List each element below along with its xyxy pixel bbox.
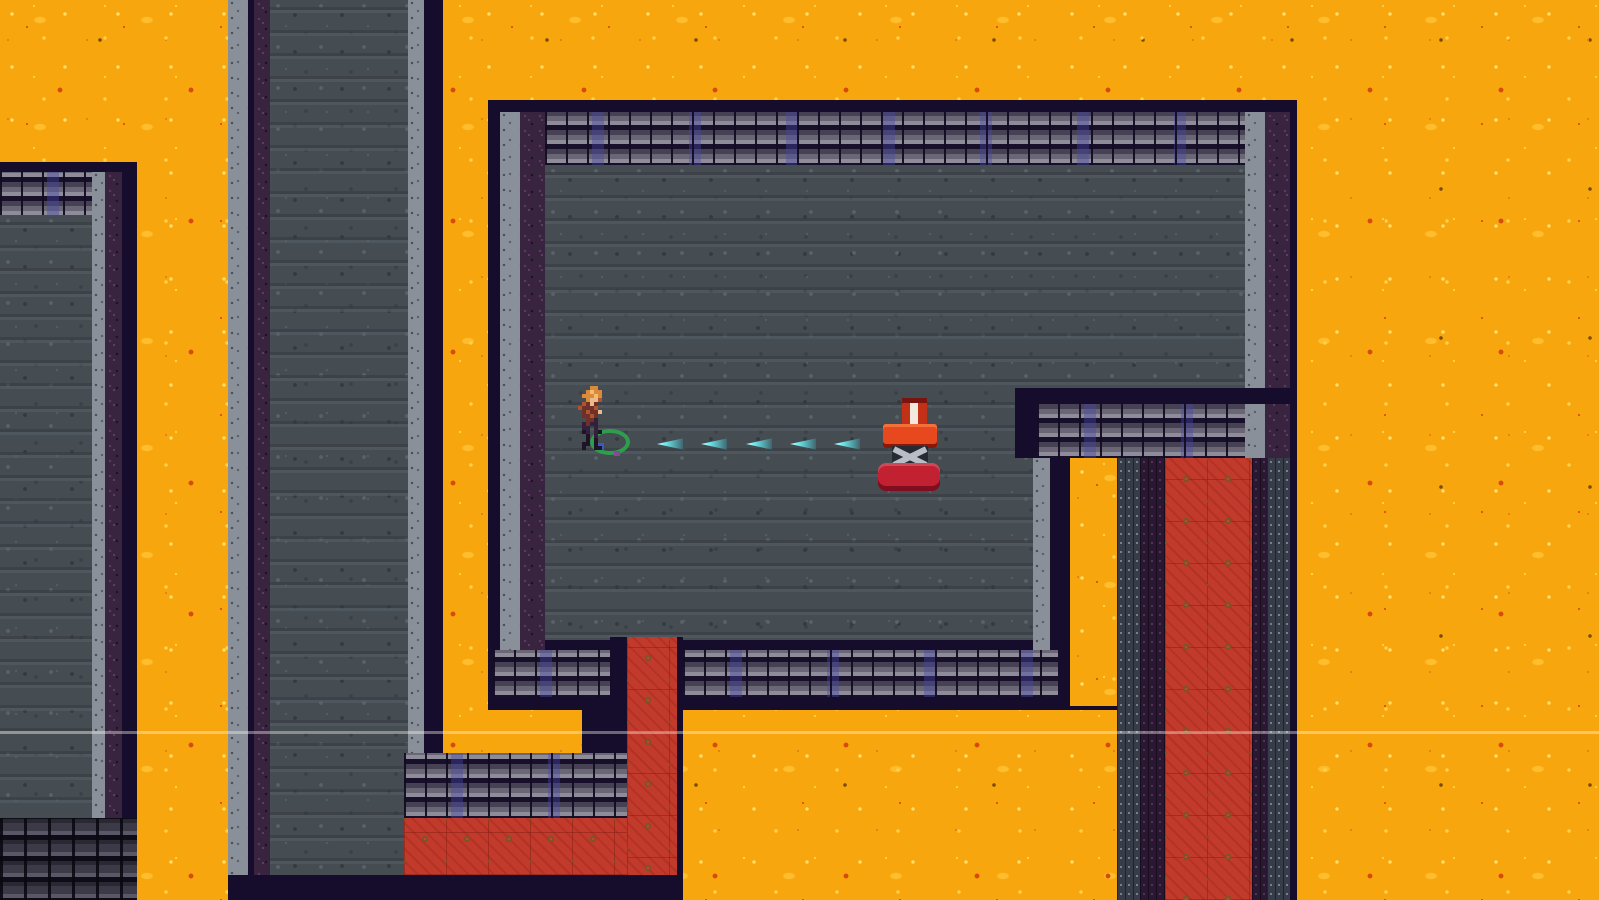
player-selection-ring: [590, 429, 630, 455]
bottom-passage-carpet[interactable]: [404, 818, 627, 875]
ledge-top-outline: [1015, 388, 1297, 404]
east-corridor-purple-east: [1252, 458, 1267, 900]
south-carpet[interactable]: [627, 637, 677, 900]
machine-top-bar: [883, 424, 937, 448]
east-carpet-corridor: [1117, 458, 1297, 900]
room-west-cap: [500, 112, 520, 650]
east-corridor-carpet[interactable]: [1165, 458, 1252, 900]
corridor-floor[interactable]: [270, 0, 408, 876]
room-west-purple: [520, 112, 545, 650]
room-south-bricks-west: [493, 650, 610, 697]
machine-bottom-bar: [878, 463, 940, 491]
left-room-bottom-dark-bricks: [0, 818, 137, 900]
east-corridor-chain-east: [1267, 458, 1290, 900]
left-room-wall-cap-purple: [105, 172, 122, 818]
corridor-west-purple: [254, 0, 270, 900]
lava-pocket-east-wall: [582, 697, 627, 753]
bottom-passage-bricks: [404, 753, 627, 818]
faint-scanline-overlay: [0, 731, 1599, 734]
east-corridor-chain-west: [1117, 458, 1140, 900]
corridor-east-wall: [424, 0, 443, 876]
room-east-purple: [1265, 112, 1290, 458]
left-room: [0, 162, 137, 900]
ring-dot-blue: [597, 443, 604, 450]
ring-dot-purple: [614, 451, 620, 456]
game-viewport[interactable]: [0, 0, 1599, 900]
lava-channel: [1070, 458, 1117, 706]
east-corridor-outline: [1290, 458, 1297, 900]
left-room-top-brick-wall: [0, 172, 92, 217]
ledge-west-outline: [1015, 388, 1037, 458]
bottom-passage-south-wall: [228, 875, 683, 900]
room-north-brick-wall: [545, 112, 1245, 165]
red-press-machine[interactable]: [854, 384, 944, 494]
corridor-west-cap: [228, 0, 248, 900]
ledge-brick-wall: [1037, 404, 1245, 458]
east-corridor-purple-west: [1140, 458, 1165, 900]
corridor-east-cap: [408, 0, 424, 757]
room-east-cap: [1245, 112, 1265, 458]
player-sprite-pixels: [578, 386, 582, 390]
channel-west-cap: [1033, 458, 1050, 650]
left-room-wall-cap-gray: [92, 172, 105, 818]
room-south-bricks-east: [683, 650, 1058, 697]
left-room-floor[interactable]: [0, 215, 92, 818]
